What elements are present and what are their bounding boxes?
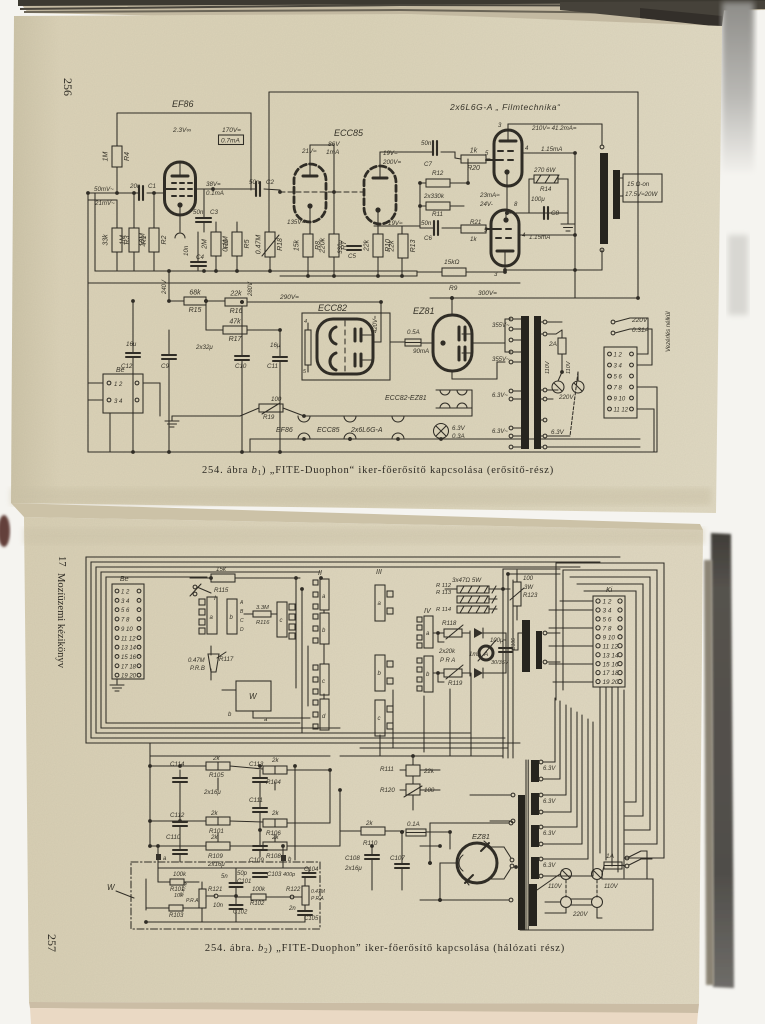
svg-text:2.3V∞: 2.3V∞ bbox=[172, 127, 191, 134]
svg-text:7 8: 7 8 bbox=[121, 618, 130, 624]
svg-text:2x6L6G-A: 2x6L6G-A bbox=[350, 427, 383, 434]
svg-text:9 10: 9 10 bbox=[603, 634, 616, 641]
svg-text:9 10: 9 10 bbox=[121, 627, 133, 633]
svg-text:19 20: 19 20 bbox=[121, 674, 137, 680]
svg-text:C4: C4 bbox=[196, 254, 204, 261]
svg-text:290V=: 290V= bbox=[279, 294, 299, 301]
svg-text:2M: 2M bbox=[202, 239, 209, 250]
svg-text:13 14: 13 14 bbox=[121, 646, 137, 652]
svg-text:16μ: 16μ bbox=[126, 341, 137, 348]
svg-text:3.3M: 3.3M bbox=[256, 605, 269, 611]
svg-text:5n: 5n bbox=[221, 874, 228, 880]
svg-text:1 2: 1 2 bbox=[114, 382, 123, 388]
svg-text:2x32μ: 2x32μ bbox=[195, 344, 213, 351]
svg-text:110V: 110V bbox=[566, 360, 572, 374]
svg-text:R 114: R 114 bbox=[436, 607, 451, 613]
svg-text:15k: 15k bbox=[216, 566, 227, 573]
svg-text:15kΩ: 15kΩ bbox=[444, 259, 459, 266]
svg-text:10M: 10M bbox=[140, 233, 147, 247]
svg-text:c: c bbox=[280, 618, 283, 624]
svg-text:6.3V: 6.3V bbox=[452, 425, 466, 432]
svg-text:R13: R13 bbox=[410, 239, 417, 252]
svg-text:0.1mA: 0.1mA bbox=[206, 190, 224, 197]
svg-text:19 20: 19 20 bbox=[603, 679, 619, 686]
svg-text:2n: 2n bbox=[288, 906, 296, 912]
svg-text:C9: C9 bbox=[161, 363, 169, 370]
svg-text:6.3V~: 6.3V~ bbox=[492, 393, 508, 399]
svg-text:R120: R120 bbox=[380, 787, 395, 794]
svg-text:5 6: 5 6 bbox=[614, 375, 623, 381]
svg-text:3 4: 3 4 bbox=[121, 599, 130, 605]
svg-text:11 12: 11 12 bbox=[614, 408, 629, 414]
svg-text:1A: 1A bbox=[606, 853, 614, 860]
svg-text:C11: C11 bbox=[267, 363, 278, 370]
svg-text:270 6W: 270 6W bbox=[533, 167, 556, 174]
svg-text:100μ≈: 100μ≈ bbox=[490, 638, 507, 644]
svg-text:110V: 110V bbox=[604, 884, 619, 890]
svg-text:50n: 50n bbox=[421, 140, 432, 147]
svg-text:P R A: P R A bbox=[311, 896, 324, 902]
svg-text:6.3V: 6.3V bbox=[543, 799, 556, 805]
svg-text:1 2: 1 2 bbox=[603, 599, 612, 606]
svg-text:III: III bbox=[376, 569, 382, 576]
svg-text:0.47M: 0.47M bbox=[256, 235, 263, 255]
svg-text:210V≈ 41.2mA=: 210V≈ 41.2mA= bbox=[531, 125, 577, 132]
svg-text:11 12: 11 12 bbox=[121, 636, 136, 642]
svg-text:10k: 10k bbox=[174, 893, 183, 899]
svg-text:22k: 22k bbox=[423, 768, 435, 775]
svg-text:0.47M: 0.47M bbox=[311, 889, 326, 895]
svg-text:24V-: 24V- bbox=[479, 201, 493, 208]
svg-text:C7: C7 bbox=[424, 161, 432, 168]
svg-text:R 112: R 112 bbox=[436, 583, 452, 589]
svg-text:170V=: 170V= bbox=[222, 127, 241, 134]
svg-text:22k: 22k bbox=[229, 291, 242, 298]
svg-text:16μ: 16μ bbox=[270, 342, 281, 349]
svg-text:C110: C110 bbox=[166, 834, 181, 841]
svg-text:R123: R123 bbox=[523, 593, 538, 599]
svg-text:19V=: 19V= bbox=[383, 150, 398, 157]
svg-text:90mA: 90mA bbox=[413, 348, 429, 355]
svg-text:C2: C2 bbox=[266, 179, 274, 186]
svg-text:R15: R15 bbox=[189, 307, 202, 314]
svg-text:A: A bbox=[239, 600, 244, 606]
svg-text:135V=: 135V= bbox=[287, 219, 305, 226]
svg-text:220k: 220k bbox=[320, 237, 327, 254]
svg-text:50mV~: 50mV~ bbox=[94, 186, 114, 193]
svg-text:50n: 50n bbox=[421, 220, 432, 227]
svg-text:C: C bbox=[240, 618, 244, 624]
svg-text:100k: 100k bbox=[173, 872, 187, 878]
svg-text:2k: 2k bbox=[210, 834, 218, 841]
svg-text:10n: 10n bbox=[213, 903, 224, 909]
svg-text:17 18: 17 18 bbox=[603, 670, 619, 677]
svg-text:300V=: 300V= bbox=[478, 290, 497, 297]
svg-text:C107: C107 bbox=[390, 855, 405, 862]
svg-text:6.3V: 6.3V bbox=[551, 429, 565, 436]
svg-text:7 8: 7 8 bbox=[614, 386, 623, 392]
svg-text:17: 17 bbox=[56, 556, 67, 567]
svg-text:1M: 1M bbox=[103, 151, 110, 161]
svg-text:C5: C5 bbox=[348, 253, 356, 260]
svg-text:ECC85: ECC85 bbox=[317, 427, 340, 434]
svg-text:Vezérlés nélkül: Vezérlés nélkül bbox=[666, 311, 672, 352]
svg-text:R 113: R 113 bbox=[436, 590, 452, 596]
svg-text:3 4: 3 4 bbox=[603, 608, 612, 615]
svg-text:R115: R115 bbox=[214, 587, 229, 594]
svg-text:R4: R4 bbox=[124, 152, 131, 161]
svg-text:9 10: 9 10 bbox=[614, 397, 626, 403]
svg-text:23mA≈: 23mA≈ bbox=[479, 192, 500, 199]
svg-text:15k: 15k bbox=[294, 239, 301, 251]
svg-text:200V=: 200V= bbox=[382, 159, 401, 166]
svg-text:2k: 2k bbox=[271, 757, 279, 764]
svg-text:R16: R16 bbox=[230, 308, 243, 315]
svg-text:1k: 1k bbox=[470, 236, 477, 243]
svg-text:2A: 2A bbox=[548, 341, 557, 348]
svg-text:R121: R121 bbox=[208, 887, 222, 893]
svg-text:I: I bbox=[214, 595, 216, 602]
svg-text:50p: 50p bbox=[237, 871, 248, 877]
svg-text:C103: C103 bbox=[267, 872, 282, 878]
svg-text:R109: R109 bbox=[208, 853, 223, 860]
svg-text:C101: C101 bbox=[237, 879, 251, 885]
svg-text:Be: Be bbox=[116, 367, 125, 374]
svg-text:100μ: 100μ bbox=[531, 196, 545, 203]
svg-text:0.7mA: 0.7mA bbox=[221, 138, 240, 145]
svg-text:17.5V≈20W: 17.5V≈20W bbox=[625, 191, 658, 198]
svg-text:11 12: 11 12 bbox=[603, 643, 619, 650]
svg-text:C112: C112 bbox=[170, 812, 185, 819]
svg-text:2x16μ: 2x16μ bbox=[344, 865, 362, 872]
svg-text:P.R.A: P.R.A bbox=[186, 898, 199, 904]
svg-text:C106: C106 bbox=[511, 638, 517, 650]
svg-text:3x47Ω 5W: 3x47Ω 5W bbox=[452, 577, 482, 584]
svg-text:ECC82: ECC82 bbox=[318, 303, 347, 313]
svg-text:13 14: 13 14 bbox=[603, 652, 619, 659]
svg-text:EF86: EF86 bbox=[172, 99, 194, 109]
svg-text:1M: 1M bbox=[120, 235, 127, 245]
svg-text:240V: 240V bbox=[162, 279, 168, 295]
svg-text:33k: 33k bbox=[103, 234, 110, 246]
svg-text:7 8: 7 8 bbox=[603, 625, 612, 632]
svg-text:100: 100 bbox=[271, 396, 282, 403]
svg-text:C102: C102 bbox=[233, 910, 248, 916]
svg-text:257: 257 bbox=[45, 934, 59, 952]
svg-text:II: II bbox=[318, 570, 322, 577]
svg-text:C108: C108 bbox=[345, 855, 360, 862]
svg-text:EF86: EF86 bbox=[276, 427, 293, 434]
svg-text:2x6L6G-A „ Filmtechnika“: 2x6L6G-A „ Filmtechnika“ bbox=[449, 102, 561, 112]
svg-text:R14: R14 bbox=[540, 186, 552, 193]
svg-text:256: 256 bbox=[61, 78, 75, 96]
svg-text:3W: 3W bbox=[524, 585, 534, 591]
svg-text:R105: R105 bbox=[209, 772, 224, 779]
svg-text:R20: R20 bbox=[467, 165, 480, 172]
svg-text:220V: 220V bbox=[572, 911, 588, 918]
svg-text:280V: 280V bbox=[248, 281, 254, 297]
svg-text:100k: 100k bbox=[252, 887, 266, 893]
svg-text:C113: C113 bbox=[249, 761, 264, 768]
svg-text:R122: R122 bbox=[286, 887, 301, 893]
svg-text:0.31A: 0.31A bbox=[632, 327, 649, 334]
svg-text:254. ábra b1) „FITE-Duophon“ i: 254. ábra b1) „FITE-Duophon“ iker-főerős… bbox=[202, 465, 554, 477]
svg-text:Mozíüzemi kézikönyv: Mozíüzemi kézikönyv bbox=[55, 573, 66, 669]
svg-text:5 6: 5 6 bbox=[603, 617, 612, 624]
svg-text:20n: 20n bbox=[129, 183, 141, 190]
svg-text:C10: C10 bbox=[235, 363, 247, 370]
svg-text:3 4: 3 4 bbox=[114, 399, 123, 405]
svg-text:420V≈: 420V≈ bbox=[373, 315, 379, 333]
svg-text:1 2: 1 2 bbox=[614, 353, 623, 359]
svg-text:R18: R18 bbox=[277, 238, 284, 251]
svg-text:254. ábra. b2) „FITE-Duophon”: 254. ábra. b2) „FITE-Duophon” iker-főerő… bbox=[205, 943, 565, 955]
svg-text:2x20k: 2x20k bbox=[438, 649, 456, 655]
svg-text:22k: 22k bbox=[364, 239, 371, 252]
svg-text:6.3V~: 6.3V~ bbox=[492, 429, 508, 435]
svg-text:R119: R119 bbox=[448, 680, 463, 687]
svg-text:R5: R5 bbox=[244, 239, 251, 248]
svg-text:R104: R104 bbox=[266, 779, 281, 786]
svg-text:6.3V: 6.3V bbox=[543, 766, 556, 772]
svg-text:30/35V: 30/35V bbox=[491, 660, 510, 666]
svg-text:68k: 68k bbox=[189, 290, 201, 297]
svg-text:R12: R12 bbox=[432, 170, 444, 177]
svg-text:C114: C114 bbox=[170, 761, 185, 768]
svg-text:2k: 2k bbox=[212, 755, 220, 762]
svg-text:C105: C105 bbox=[304, 916, 319, 922]
svg-text:400p: 400p bbox=[283, 872, 295, 878]
svg-text:R2: R2 bbox=[161, 235, 168, 244]
svg-text:C3: C3 bbox=[210, 209, 218, 216]
svg-text:R111: R111 bbox=[380, 766, 394, 773]
svg-text:6.3V: 6.3V bbox=[543, 831, 556, 837]
svg-text:2k: 2k bbox=[271, 810, 279, 817]
svg-text:0.1A: 0.1A bbox=[407, 821, 420, 828]
svg-text:6.3V: 6.3V bbox=[543, 863, 556, 869]
svg-text:355V~: 355V~ bbox=[492, 323, 510, 329]
svg-text:50n: 50n bbox=[249, 179, 260, 186]
svg-text:0.1M: 0.1M bbox=[223, 236, 230, 252]
svg-text:C1: C1 bbox=[148, 183, 156, 190]
svg-text:D: D bbox=[240, 627, 244, 633]
svg-text:R11: R11 bbox=[432, 211, 443, 218]
svg-text:R108: R108 bbox=[266, 853, 281, 860]
svg-text:1.15mA: 1.15mA bbox=[541, 146, 562, 153]
svg-text:P R A: P R A bbox=[440, 658, 455, 664]
svg-text:ECC85: ECC85 bbox=[334, 128, 364, 138]
svg-text:EZ81: EZ81 bbox=[472, 832, 490, 841]
svg-text:2x16μ: 2x16μ bbox=[203, 789, 221, 796]
svg-text:1mA: 1mA bbox=[326, 149, 339, 156]
svg-text:4: 4 bbox=[304, 319, 307, 325]
svg-text:1k: 1k bbox=[470, 148, 478, 155]
svg-text:21V≈: 21V≈ bbox=[301, 148, 317, 155]
svg-text:R9: R9 bbox=[449, 285, 458, 292]
svg-text:110V: 110V bbox=[548, 884, 563, 890]
svg-text:38V=: 38V= bbox=[206, 181, 221, 188]
svg-text:R117: R117 bbox=[219, 656, 234, 663]
svg-text:0.5A: 0.5A bbox=[407, 329, 420, 336]
svg-text:ECC82-EZ81: ECC82-EZ81 bbox=[385, 395, 427, 402]
svg-text:P.R.B: P.R.B bbox=[190, 666, 205, 672]
svg-text:R17: R17 bbox=[229, 336, 243, 343]
svg-text:c: c bbox=[322, 679, 325, 685]
svg-text:110V: 110V bbox=[545, 360, 551, 374]
svg-text:1mA: 1mA bbox=[469, 652, 481, 658]
svg-text:0.3A: 0.3A bbox=[452, 433, 465, 440]
svg-text:330p: 330p bbox=[338, 240, 344, 254]
svg-text:2x330k: 2x330k bbox=[423, 193, 445, 200]
svg-text:2k: 2k bbox=[365, 820, 373, 827]
svg-text:220V: 220V bbox=[558, 394, 574, 401]
svg-text:2k: 2k bbox=[210, 810, 218, 817]
svg-text:C111: C111 bbox=[249, 797, 263, 804]
svg-text:R118: R118 bbox=[442, 620, 457, 627]
svg-text:5 6: 5 6 bbox=[121, 608, 130, 614]
svg-text:1 2: 1 2 bbox=[121, 590, 130, 596]
svg-text:17 18: 17 18 bbox=[121, 664, 137, 670]
svg-text:R19: R19 bbox=[263, 414, 275, 421]
svg-text:R102: R102 bbox=[250, 901, 265, 907]
svg-text:C6: C6 bbox=[424, 235, 432, 242]
svg-text:15 16: 15 16 bbox=[121, 655, 137, 661]
svg-text:100: 100 bbox=[523, 576, 534, 582]
svg-text:21mV~: 21mV~ bbox=[94, 200, 115, 207]
svg-text:R103: R103 bbox=[169, 913, 184, 919]
svg-text:15 16: 15 16 bbox=[603, 661, 619, 668]
svg-text:50n: 50n bbox=[193, 209, 204, 216]
svg-text:R116: R116 bbox=[256, 620, 270, 626]
svg-text:0.47M: 0.47M bbox=[188, 658, 205, 664]
svg-text:c: c bbox=[378, 716, 381, 722]
svg-text:C109: C109 bbox=[249, 857, 264, 864]
svg-text:22k: 22k bbox=[389, 240, 396, 253]
svg-text:47k: 47k bbox=[229, 319, 241, 326]
svg-text:10n: 10n bbox=[183, 245, 190, 256]
svg-text:3 4: 3 4 bbox=[614, 364, 623, 370]
svg-text:EZ81: EZ81 bbox=[413, 306, 435, 316]
